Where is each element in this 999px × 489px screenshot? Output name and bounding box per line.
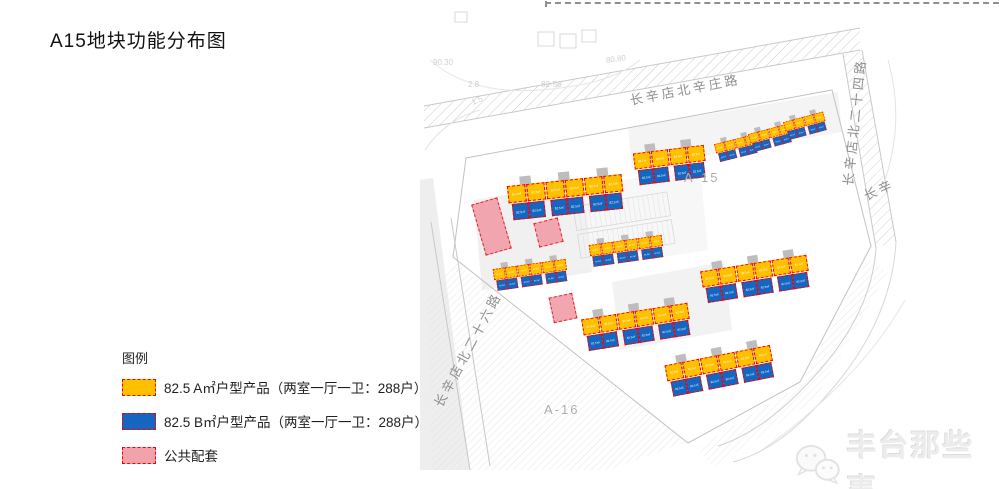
type-b-unit: 82.5㎡ <box>756 362 774 380</box>
public-amenity-block <box>471 197 512 255</box>
unit-area-label: 82.5㎡ <box>761 283 770 289</box>
building-cluster: 82.5㎡82.5㎡82.5㎡82.5㎡82.5㎡82.5㎡82.5㎡82.5㎡… <box>580 295 693 352</box>
type-b-unit: 82.5㎡ <box>653 166 670 183</box>
type-a-unit: 82.5㎡ <box>653 306 672 325</box>
unit-area-label: 82.5㎡ <box>496 272 502 276</box>
type-a-unit: 82.5㎡ <box>529 262 542 275</box>
building-section: 82.5㎡82.5㎡82.5㎡82.5㎡ <box>583 166 626 214</box>
building-section: 82.5㎡82.5㎡82.5㎡82.5㎡ <box>492 261 520 292</box>
unit-area-label: 82.5㎡ <box>710 378 719 384</box>
type-b-unit: 82.5㎡ <box>727 149 738 160</box>
unit-area-label: 82.5㎡ <box>790 133 795 137</box>
road-label: 长辛店北辛庄路 <box>628 69 742 109</box>
building-cluster: 82.5㎡82.5㎡82.5㎡82.5㎡82.5㎡82.5㎡82.5㎡82.5㎡ <box>782 107 828 141</box>
unit-area-label: 82.5㎡ <box>799 130 804 134</box>
unit-area-label: 82.5㎡ <box>795 261 804 267</box>
unit-area-label: 82.5㎡ <box>640 315 649 321</box>
unit-area-label: 82.5㎡ <box>662 328 671 334</box>
unit-area-label: 82.5㎡ <box>688 365 697 371</box>
building-cluster: 82.5㎡82.5㎡82.5㎡82.5㎡82.5㎡82.5㎡82.5㎡82.5㎡… <box>506 166 626 222</box>
unit-area-label: 82.5㎡ <box>644 252 650 256</box>
unit-area-label: 82.5㎡ <box>555 205 564 211</box>
building-section: 82.5㎡82.5㎡82.5㎡82.5㎡ <box>612 233 640 264</box>
unit-area-label: 82.5㎡ <box>609 199 618 205</box>
unit-area-label: 82.5㎡ <box>758 352 767 358</box>
unit-area-label: 82.5㎡ <box>657 172 666 177</box>
unit-area-label: 82.5㎡ <box>817 116 822 120</box>
unit-area-label: 82.5㎡ <box>622 318 631 324</box>
type-b-unit: 82.5㎡ <box>796 127 807 138</box>
unit-area-label: 82.5㎡ <box>781 280 790 286</box>
public-amenity-block <box>549 293 578 323</box>
unit-area-label: 82.5㎡ <box>591 339 600 345</box>
unit-area-label: 82.5㎡ <box>604 246 610 250</box>
type-a-unit: 82.5㎡ <box>651 149 670 167</box>
unit-area-label: 82.5㎡ <box>524 280 530 284</box>
type-b-unit: 82.5㎡ <box>627 250 639 262</box>
type-a-unit: 82.5㎡ <box>581 317 600 336</box>
type-a-unit: 82.5㎡ <box>633 151 652 169</box>
unit-area-label: 82.5㎡ <box>729 153 734 157</box>
unit-area-label: 82.5㎡ <box>620 256 626 260</box>
unit-area-label: 82.5㎡ <box>738 141 743 145</box>
unit-area-label: 82.5㎡ <box>571 203 580 209</box>
type-b-unit: 82.5㎡ <box>721 283 738 300</box>
type-a-unit: 82.5㎡ <box>754 260 773 279</box>
unit-area-label: 82.5㎡ <box>762 133 767 137</box>
elevation-mark: 1.5 <box>470 94 484 107</box>
unit-area-label: 82.5㎡ <box>690 382 699 388</box>
unit-area-label: 82.5㎡ <box>589 183 598 189</box>
type-b-unit: 82.5㎡ <box>556 271 568 283</box>
type-b-unit: 82.5㎡ <box>756 278 773 295</box>
unit-area-label: 82.5㎡ <box>819 125 824 129</box>
type-b-unit: 82.5㎡ <box>603 254 615 266</box>
watermark-text: 丰台那些事 <box>847 421 999 489</box>
building-section: 82.5㎡82.5㎡82.5㎡82.5㎡ <box>616 301 658 347</box>
type-b-unit: 82.5㎡ <box>638 168 655 185</box>
unit-area-label: 82.5㎡ <box>592 248 598 252</box>
unit-area-label: 82.5㎡ <box>516 209 525 215</box>
elevation-mark: 2.8 <box>468 80 479 89</box>
public-amenity-block <box>533 217 563 247</box>
type-a-unit: 82.5㎡ <box>565 178 585 197</box>
road-label: 长辛 <box>860 174 897 204</box>
type-a-unit: 82.5㎡ <box>517 264 530 277</box>
unit-area-label: 82.5㎡ <box>797 121 802 125</box>
type-a-unit: 82.5㎡ <box>687 145 706 163</box>
unit-area-label: 82.5㎡ <box>741 355 750 361</box>
type-b-unit: 82.5㎡ <box>531 274 543 286</box>
building-cluster: 82.5㎡82.5㎡82.5㎡82.5㎡82.5㎡82.5㎡82.5㎡82.5㎡… <box>492 254 569 292</box>
type-b-unit: 82.5㎡ <box>652 247 664 259</box>
elevation-mark: 80.80 <box>605 53 626 65</box>
type-a-unit: 82.5㎡ <box>736 263 755 282</box>
type-a-unit: 82.5㎡ <box>638 237 651 250</box>
unit-area-label: 82.5㎡ <box>761 368 770 374</box>
unit-area-label: 82.5㎡ <box>755 145 760 149</box>
type-a-unit: 82.5㎡ <box>603 174 623 193</box>
type-b-unit: 82.5㎡ <box>605 193 623 211</box>
wechat-chat-bubbles-icon <box>793 441 843 489</box>
type-a-unit: 82.5㎡ <box>545 180 565 199</box>
unit-area-label: 82.5㎡ <box>557 263 563 267</box>
unit-area-label: 82.5㎡ <box>759 267 768 273</box>
unit-area-label: 82.5㎡ <box>777 264 786 270</box>
building-section: 82.5㎡82.5㎡82.5㎡82.5㎡ <box>541 254 569 285</box>
unit-area-label: 82.5㎡ <box>533 267 539 271</box>
unit-area-label: 82.5㎡ <box>570 185 579 191</box>
parcel-label: A-15 <box>684 170 719 185</box>
unit-area-label: 82.5㎡ <box>725 289 734 295</box>
building-section: 82.5㎡82.5㎡82.5㎡82.5㎡ <box>699 258 741 304</box>
parcel-label: A-16 <box>544 402 579 417</box>
type-a-unit: 82.5㎡ <box>617 311 636 330</box>
type-a-unit: 82.5㎡ <box>601 242 614 255</box>
type-a-unit: 82.5㎡ <box>505 266 518 279</box>
type-b-unit: 82.5㎡ <box>792 272 809 289</box>
type-a-unit: 82.5㎡ <box>613 240 626 253</box>
unit-area-label: 82.5㎡ <box>786 124 791 128</box>
unit-area-label: 82.5㎡ <box>727 143 732 147</box>
unit-area-label: 82.5㎡ <box>558 275 564 279</box>
type-a-unit: 82.5㎡ <box>625 238 638 251</box>
building-section: 82.5㎡82.5㎡82.5㎡82.5㎡ <box>545 170 588 218</box>
unit-area-label: 82.5㎡ <box>499 283 505 287</box>
type-a-unit: 82.5㎡ <box>542 261 555 274</box>
unit-area-label: 82.5㎡ <box>658 312 667 318</box>
type-b-unit: 82.5㎡ <box>685 376 703 394</box>
building-section: 82.5㎡82.5㎡82.5㎡82.5㎡ <box>734 337 777 384</box>
building-section: 82.5㎡82.5㎡82.5㎡82.5㎡ <box>770 247 812 293</box>
unit-area-label: 82.5㎡ <box>521 269 527 273</box>
unit-area-label: 82.5㎡ <box>741 150 746 154</box>
type-a-unit: 82.5㎡ <box>599 314 618 333</box>
type-a-unit: 82.5㎡ <box>589 244 602 257</box>
road-label: 长辛店北二十四路 <box>838 57 870 186</box>
building-section: 82.5㎡82.5㎡82.5㎡82.5㎡ <box>735 253 777 299</box>
unit-area-label: 82.5㎡ <box>741 270 750 276</box>
unit-area-label: 82.5㎡ <box>677 326 686 332</box>
type-b-unit: 82.5㎡ <box>528 201 546 219</box>
unit-area-label: 82.5㎡ <box>642 174 651 179</box>
building-section: 82.5㎡82.5㎡82.5㎡82.5㎡ <box>588 237 616 268</box>
type-b-unit: 82.5㎡ <box>637 326 654 343</box>
unit-area-label: 82.5㎡ <box>586 323 595 329</box>
unit-area-label: 82.5㎡ <box>674 153 683 158</box>
type-a-unit: 82.5㎡ <box>789 255 808 274</box>
type-b-unit: 82.5㎡ <box>816 121 827 132</box>
unit-area-label: 82.5㎡ <box>705 362 714 368</box>
building-section: 82.5㎡82.5㎡82.5㎡82.5㎡ <box>637 230 665 261</box>
site-plan-map: 82.5㎡82.5㎡82.5㎡82.5㎡82.5㎡82.5㎡82.5㎡82.5㎡… <box>0 0 999 489</box>
type-b-unit: 82.5㎡ <box>567 197 585 215</box>
type-a-unit: 82.5㎡ <box>669 147 688 165</box>
type-a-unit: 82.5㎡ <box>650 235 663 248</box>
unit-area-label: 82.5㎡ <box>670 369 679 375</box>
building-cluster: 82.5㎡82.5㎡82.5㎡82.5㎡82.5㎡82.5㎡82.5㎡82.5㎡… <box>663 337 777 398</box>
type-a-unit: 82.5㎡ <box>700 269 719 288</box>
type-b-unit: 82.5㎡ <box>507 278 519 290</box>
type-a-unit: 82.5㎡ <box>554 259 567 272</box>
unit-area-label: 82.5㎡ <box>764 142 769 146</box>
type-b-unit: 82.5㎡ <box>550 198 568 216</box>
type-a-unit: 82.5㎡ <box>493 268 506 281</box>
unit-area-label: 82.5㎡ <box>656 156 665 161</box>
unit-area-label: 82.5㎡ <box>545 265 551 269</box>
unit-area-label: 82.5㎡ <box>676 309 685 315</box>
unit-area-label: 82.5㎡ <box>551 187 560 193</box>
type-b-unit: 82.5㎡ <box>721 369 739 387</box>
type-a-unit: 82.5㎡ <box>507 184 527 203</box>
unit-area-label: 82.5㎡ <box>746 371 755 377</box>
unit-area-label: 82.5㎡ <box>512 191 521 197</box>
unit-area-label: 82.5㎡ <box>772 130 777 134</box>
unit-area-label: 82.5㎡ <box>807 118 812 122</box>
unit-area-label: 82.5㎡ <box>641 241 647 245</box>
type-a-unit: 82.5㎡ <box>670 303 689 322</box>
unit-area-label: 82.5㎡ <box>606 337 615 343</box>
page: A15地块功能分布图 <box>0 0 999 489</box>
building-section: 82.5㎡82.5㎡82.5㎡82.5㎡ <box>516 257 544 288</box>
watermark: 丰台那些事 <box>793 421 999 489</box>
unit-area-label: 82.5㎡ <box>654 251 660 255</box>
unit-area-label: 82.5㎡ <box>675 385 684 391</box>
unit-area-label: 82.5㎡ <box>627 334 636 340</box>
unit-area-label: 82.5㎡ <box>605 258 611 262</box>
unit-area-label: 82.5㎡ <box>630 254 636 258</box>
unit-area-label: 82.5㎡ <box>751 136 756 140</box>
building-cluster: 82.5㎡82.5㎡82.5㎡82.5㎡82.5㎡82.5㎡82.5㎡82.5㎡… <box>588 230 665 268</box>
type-b-unit: 82.5㎡ <box>512 202 530 220</box>
type-a-unit: 82.5㎡ <box>772 258 791 277</box>
unit-area-label: 82.5㎡ <box>531 189 540 195</box>
unit-area-label: 82.5㎡ <box>723 273 732 279</box>
unit-area-label: 82.5㎡ <box>609 181 618 187</box>
unit-area-label: 82.5㎡ <box>629 243 635 247</box>
unit-area-label: 82.5㎡ <box>721 155 726 159</box>
unit-area-label: 82.5㎡ <box>653 239 659 243</box>
unit-area-label: 82.5㎡ <box>710 291 719 297</box>
unit-area-label: 82.5㎡ <box>692 151 701 156</box>
type-a-unit: 82.5㎡ <box>718 266 737 285</box>
building-section: 82.5㎡82.5㎡82.5㎡82.5㎡ <box>580 306 622 352</box>
unit-area-label: 82.5㎡ <box>509 282 515 286</box>
unit-area-label: 82.5㎡ <box>725 375 734 381</box>
type-a-unit: 82.5㎡ <box>635 308 654 327</box>
unit-area-label: 82.5㎡ <box>723 359 732 365</box>
road-label: 长辛店北二十六路 <box>429 288 506 410</box>
unit-area-label: 82.5㎡ <box>746 286 755 292</box>
type-b-unit: 82.5㎡ <box>673 320 690 337</box>
unit-area-label: 82.5㎡ <box>638 158 647 163</box>
building-section: 82.5㎡82.5㎡82.5㎡82.5㎡ <box>632 142 673 187</box>
type-b-unit: 82.5㎡ <box>602 331 619 348</box>
unit-area-label: 82.5㎡ <box>534 278 540 282</box>
unit-area-label: 82.5㎡ <box>810 127 815 131</box>
type-b-unit: 82.5㎡ <box>761 139 772 150</box>
unit-area-label: 82.5㎡ <box>796 278 805 284</box>
type-a-unit: 82.5㎡ <box>526 182 546 201</box>
unit-area-label: 82.5㎡ <box>642 331 651 337</box>
elevation-mark: 82-56 <box>541 80 561 89</box>
building-section: 82.5㎡82.5㎡82.5㎡82.5㎡ <box>506 174 549 222</box>
unit-area-label: 82.5㎡ <box>532 207 541 213</box>
building-section: 82.5㎡82.5㎡82.5㎡82.5㎡ <box>651 295 693 341</box>
type-a-unit: 82.5㎡ <box>584 176 604 195</box>
unit-area-label: 82.5㎡ <box>508 270 514 274</box>
type-b-unit: 82.5㎡ <box>589 194 607 212</box>
unit-area-label: 82.5㎡ <box>593 200 602 206</box>
unit-area-label: 82.5㎡ <box>775 139 780 143</box>
elevation-mark: 90.30 <box>433 58 453 67</box>
unit-area-label: 82.5㎡ <box>717 146 722 150</box>
building-cluster: 82.5㎡82.5㎡82.5㎡82.5㎡82.5㎡82.5㎡82.5㎡82.5㎡… <box>699 247 812 304</box>
unit-area-label: 82.5㎡ <box>604 321 613 327</box>
unit-area-label: 82.5㎡ <box>548 276 554 280</box>
unit-area-label: 82.5㎡ <box>617 245 623 249</box>
unit-area-label: 82.5㎡ <box>705 275 714 281</box>
unit-area-label: 82.5㎡ <box>595 259 601 263</box>
